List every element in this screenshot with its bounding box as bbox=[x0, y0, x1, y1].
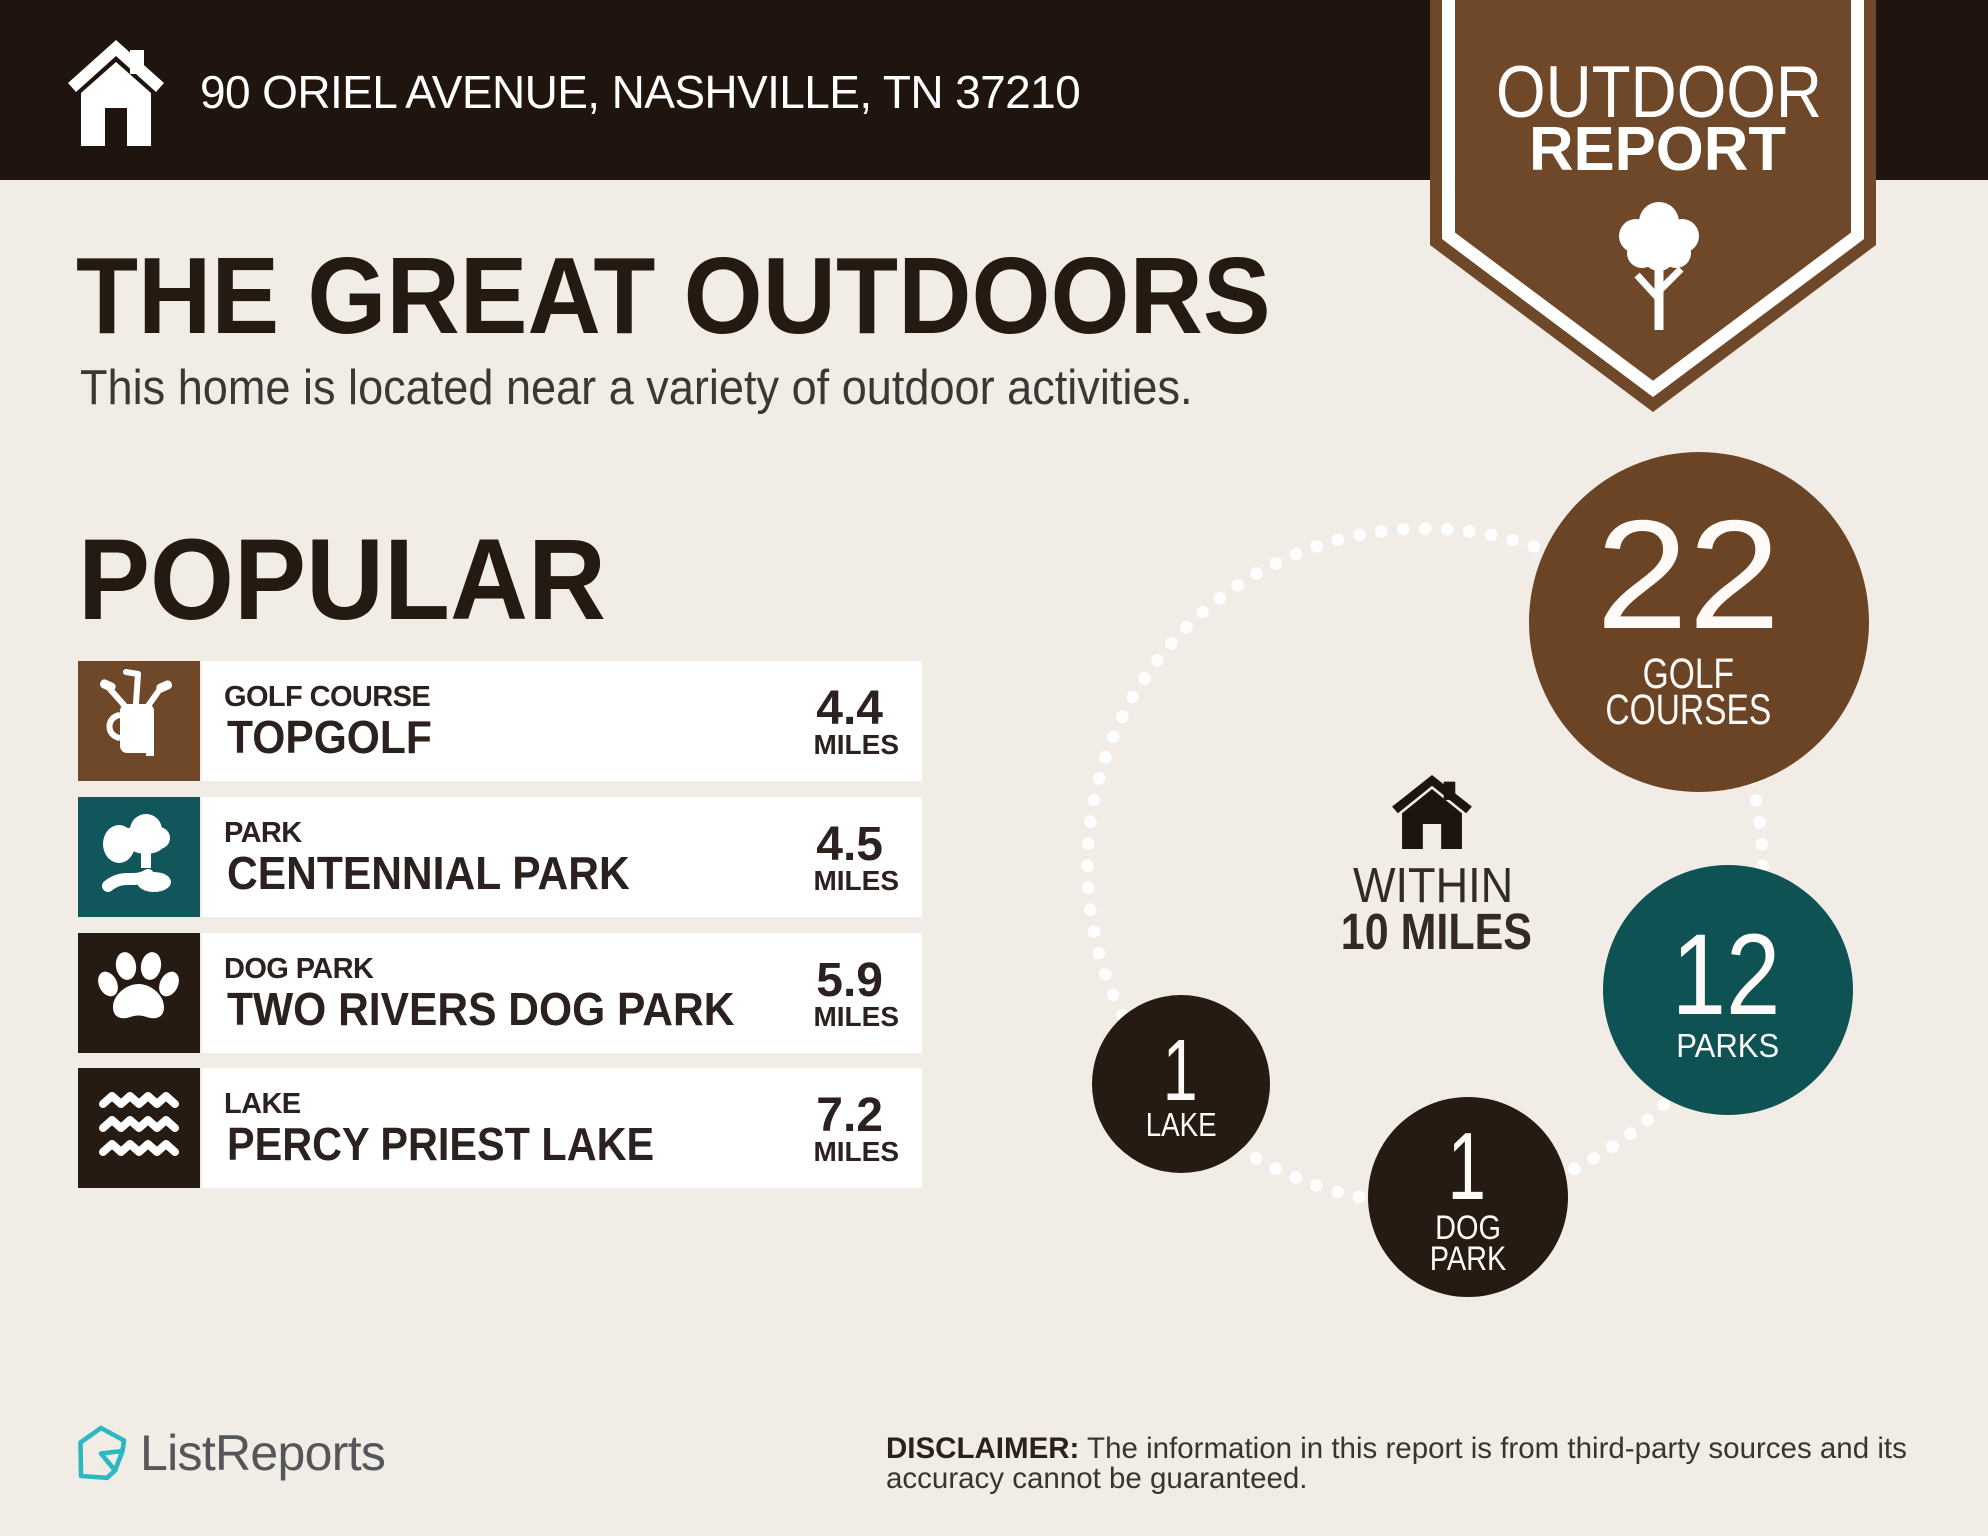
svg-text:REPORT: REPORT bbox=[1529, 115, 1786, 184]
